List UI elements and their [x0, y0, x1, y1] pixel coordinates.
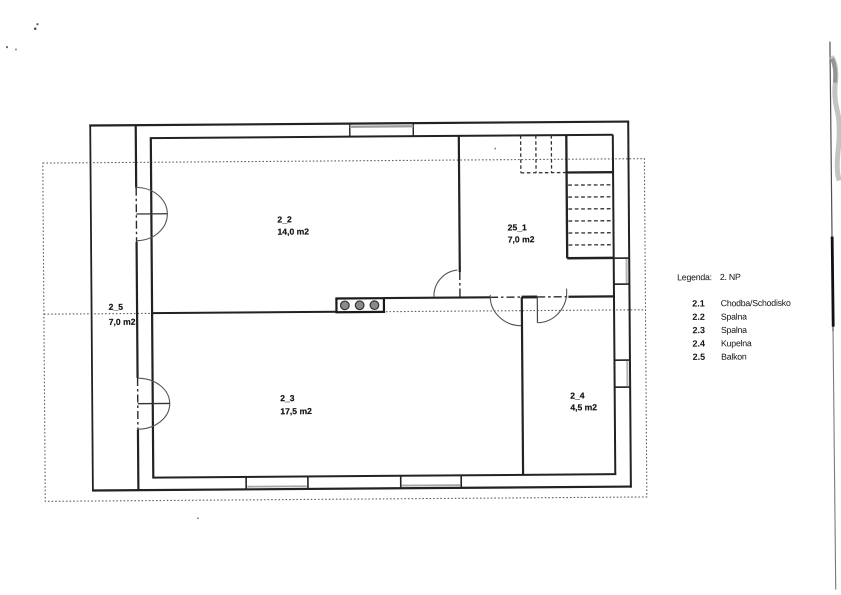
svg-text:7,0 m2: 7,0 m2: [109, 317, 136, 327]
svg-text:4,5 m2: 4,5 m2: [570, 402, 597, 412]
svg-text:Kupelna: Kupelna: [721, 338, 752, 348]
svg-text:Legenda:: Legenda:: [677, 272, 712, 282]
svg-text:Spalna: Spalna: [721, 325, 747, 335]
svg-text:7,0 m2: 7,0 m2: [508, 234, 535, 244]
svg-text:17,5 m2: 17,5 m2: [280, 406, 312, 416]
svg-text:2.5: 2.5: [693, 352, 706, 362]
svg-text:2_4: 2_4: [570, 391, 585, 401]
svg-text:14,0 m2: 14,0 m2: [277, 226, 309, 236]
svg-text:2.4: 2.4: [692, 339, 705, 349]
svg-text:2_5: 2_5: [109, 302, 124, 312]
svg-text:2_2: 2_2: [277, 214, 292, 224]
svg-text:2.1: 2.1: [692, 298, 705, 308]
svg-text:25_1: 25_1: [508, 222, 527, 232]
svg-text:Chodba/Schodisko: Chodba/Schodisko: [721, 298, 791, 309]
svg-text:Balkon: Balkon: [721, 352, 747, 362]
svg-text:2. NP: 2. NP: [720, 272, 741, 282]
svg-text:2_3: 2_3: [280, 393, 295, 403]
svg-text:Spalna: Spalna: [721, 312, 747, 322]
svg-text:2.2: 2.2: [692, 312, 705, 322]
svg-text:2.3: 2.3: [692, 325, 705, 335]
